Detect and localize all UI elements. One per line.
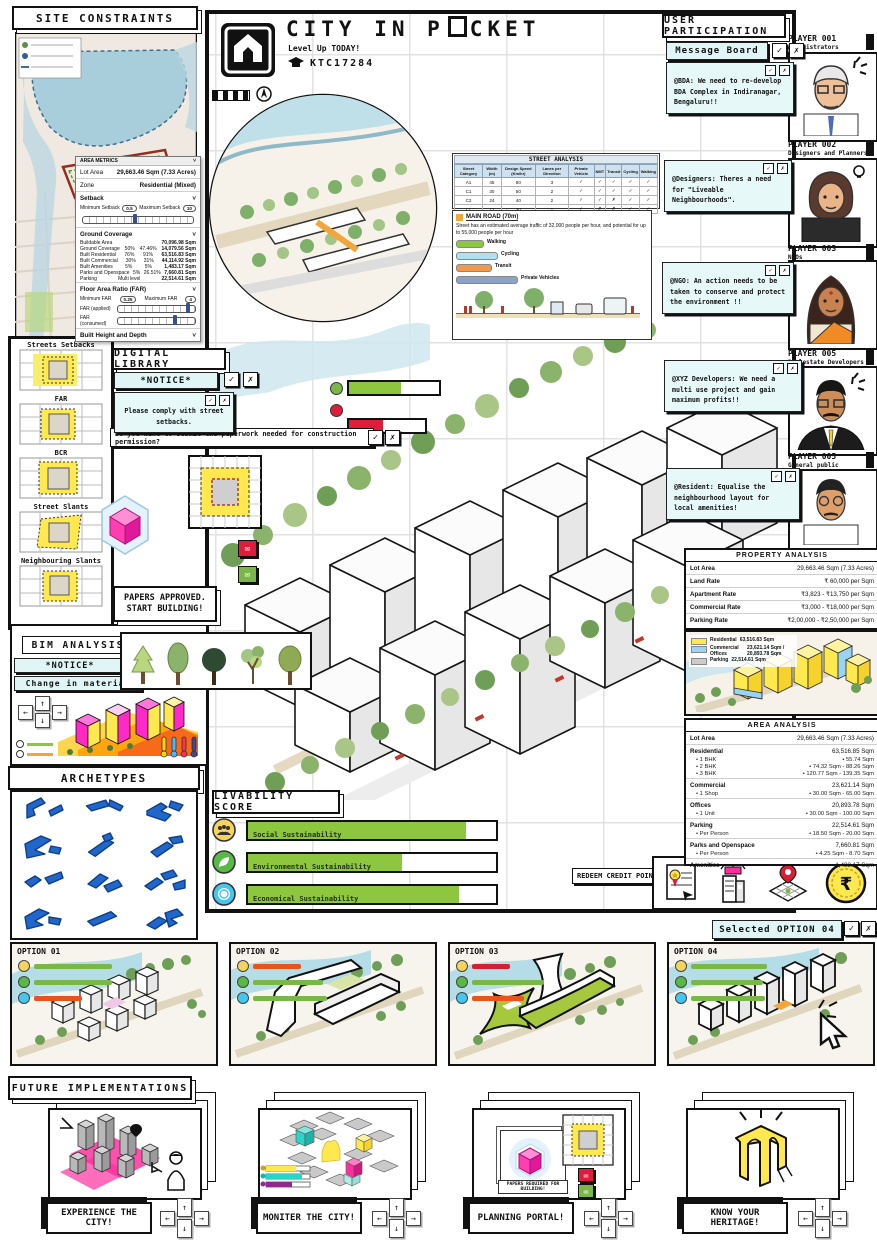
archetypes-grid bbox=[10, 790, 198, 940]
max-setback-value[interactable]: 10 bbox=[183, 205, 196, 212]
message-resident[interactable]: ✓✗ @Resident: Equalise the neighbourhood… bbox=[666, 468, 800, 520]
green-progress-dot bbox=[330, 382, 343, 395]
approve-checkbox[interactable]: ✓ bbox=[765, 65, 776, 76]
message-board-reject-checkbox[interactable]: ✗ bbox=[789, 43, 804, 58]
arrow-left-key[interactable]: ← bbox=[160, 1211, 175, 1226]
arrow-up-key[interactable]: ↑ bbox=[815, 1198, 830, 1217]
far-applied-label: FAR (applied) bbox=[80, 306, 114, 312]
player-002-avatar[interactable] bbox=[788, 158, 877, 248]
economy-score-icon bbox=[456, 992, 468, 1004]
north-arrow-icon bbox=[256, 86, 272, 102]
option-02-card[interactable]: OPTION 02 bbox=[229, 942, 437, 1066]
planning-portal-card[interactable]: ✉ ✉ PAPERS REQUIRED FOR BUILDING! bbox=[472, 1108, 626, 1200]
legend-private-vehicles: Private Vehicles bbox=[456, 275, 648, 284]
arrow-left-key[interactable]: ← bbox=[372, 1211, 387, 1226]
arrow-down-key[interactable]: ↓ bbox=[389, 1219, 404, 1238]
archetype-tile[interactable] bbox=[21, 795, 65, 825]
message-text: @Resident: Equalise the neighbourhood la… bbox=[674, 483, 769, 512]
player-002-label: PLAYER 002Designers and Planners bbox=[788, 140, 874, 158]
site-constraints-title: SITE CONSTRAINTS bbox=[36, 12, 174, 25]
option-01-card[interactable]: OPTION 01 bbox=[10, 942, 218, 1066]
arrow-right-key[interactable]: → bbox=[832, 1211, 847, 1226]
environment-score-icon bbox=[675, 976, 687, 988]
portal-approve-envelope[interactable]: ✉ bbox=[578, 1184, 594, 1198]
livability-label: Social Sustainability bbox=[248, 831, 342, 839]
property-analysis-panel: PROPERTY ANALYSIS Lot Area29,663.46 Sqm … bbox=[684, 548, 877, 630]
tree-option-conifer[interactable] bbox=[130, 644, 156, 686]
monitor-city-card[interactable] bbox=[258, 1108, 412, 1200]
heritage-card[interactable] bbox=[686, 1108, 840, 1200]
title-pre: CITY IN P bbox=[286, 17, 445, 41]
legend-walking: Walking bbox=[456, 239, 648, 248]
caption-text: EXPERIENCE THE CITY! bbox=[48, 1208, 150, 1228]
page-title: CITY IN PCKET bbox=[286, 16, 540, 41]
arrow-up-key[interactable]: ↑ bbox=[601, 1198, 616, 1217]
setbacks-notice-message[interactable]: ✓✗ Please comply with street setbacks. bbox=[114, 392, 234, 433]
archetype-tile[interactable] bbox=[82, 868, 126, 898]
archetypes-title: ARCHETYPES bbox=[61, 772, 147, 785]
archetype-tile[interactable] bbox=[143, 795, 187, 825]
notice-label: *NOTICE* bbox=[140, 376, 191, 386]
monitor-bars bbox=[261, 1166, 311, 1188]
monitor-city-render bbox=[260, 1110, 406, 1194]
person-figure bbox=[168, 1152, 184, 1190]
message-ngo[interactable]: ✓✗ @NGO: An action needs to be taken to … bbox=[662, 262, 794, 314]
metric-row: Lot Area29,663.46 Sqm (7.33 Acres) bbox=[76, 166, 200, 178]
message-text: @XYZ Developers: We need a multi use pro… bbox=[672, 375, 775, 404]
approve-checkbox[interactable]: ✓ bbox=[773, 363, 784, 374]
user-participation-title: USER PARTICIPATION bbox=[664, 15, 784, 37]
lightbulb-icon bbox=[854, 166, 864, 177]
frame-stub bbox=[866, 349, 874, 365]
arrow-up-key[interactable]: ↑ bbox=[177, 1198, 192, 1217]
green-progress-bar bbox=[347, 380, 441, 396]
reject-checkbox[interactable]: ✗ bbox=[785, 471, 796, 482]
graduation-cap-icon bbox=[288, 57, 304, 69]
masterplan-zoom-circle bbox=[207, 92, 439, 324]
option-04-card[interactable]: OPTION 04 bbox=[667, 942, 875, 1066]
far-consumed-label: FAR (consumed) bbox=[80, 315, 114, 327]
collapse-caret[interactable]: ˅ bbox=[193, 158, 196, 164]
caption-text: KNOW YOUR HERITAGE! bbox=[684, 1208, 786, 1228]
arrow-right-key[interactable]: → bbox=[406, 1211, 421, 1226]
archetype-tile[interactable] bbox=[143, 832, 187, 862]
neighbouring-slants-diagram bbox=[19, 565, 103, 607]
archetype-tile[interactable] bbox=[143, 905, 187, 935]
papers-required-note: PAPERS REQUIRED FOR BUILDING! bbox=[498, 1180, 568, 1194]
question-yes-checkbox[interactable]: ✓ bbox=[368, 430, 383, 445]
economy-score-icon bbox=[237, 992, 249, 1004]
area-metrics-title: AREA METRICS bbox=[80, 158, 118, 164]
score-bar bbox=[34, 996, 82, 1001]
environment-score-icon bbox=[456, 976, 468, 988]
area-metrics-panel: AREA METRICS ˅ Lot Area29,663.46 Sqm (7.… bbox=[75, 156, 201, 342]
notice-reject-checkbox[interactable]: ✗ bbox=[243, 372, 258, 387]
heritage-dpad[interactable]: ← ↑↓ → bbox=[798, 1198, 847, 1238]
social-icon bbox=[212, 818, 236, 842]
legend-cycling: Cycling bbox=[456, 251, 648, 260]
street-section-drawing bbox=[456, 286, 640, 320]
arrow-down-key[interactable]: ↓ bbox=[177, 1219, 192, 1238]
tree-option-oval[interactable] bbox=[167, 642, 189, 686]
sidebar-item-street-slants[interactable]: Street Slants bbox=[11, 503, 111, 511]
tree-option-olive[interactable] bbox=[278, 644, 302, 686]
svg-text:₹: ₹ bbox=[840, 874, 853, 895]
sidebar-item-streets-setbacks[interactable]: Streets Setbacks bbox=[11, 341, 111, 349]
heritage-monument-render bbox=[688, 1110, 834, 1194]
question-no-checkbox[interactable]: ✗ bbox=[385, 430, 400, 445]
portal-plan-icon bbox=[562, 1114, 614, 1166]
archetype-tile[interactable] bbox=[143, 868, 187, 898]
social-score-icon bbox=[18, 960, 30, 972]
sidebar-item-far[interactable]: FAR bbox=[11, 395, 111, 403]
arrow-right-key[interactable]: → bbox=[194, 1211, 209, 1226]
message-text: @Designers: Theres a need for "Liveable … bbox=[672, 175, 771, 204]
experience-city-caption[interactable]: EXPERIENCE THE CITY! bbox=[46, 1202, 152, 1234]
arrow-down-key[interactable]: ↓ bbox=[815, 1219, 830, 1238]
option-03-card[interactable]: OPTION 03 bbox=[448, 942, 656, 1066]
papers-approved-text: PAPERS APPROVED. START BUILDING! bbox=[115, 593, 215, 615]
sidebar-item-bcr[interactable]: BCR bbox=[11, 449, 111, 457]
bim-notice-label: *NOTICE* bbox=[46, 661, 95, 671]
area-analysis-panel: AREA ANALYSIS Lot Area29,663.46 Sqm (7.3… bbox=[684, 718, 877, 866]
score-bar bbox=[691, 964, 767, 969]
social-score-icon bbox=[456, 960, 468, 972]
notice-approve-checkbox[interactable]: ✓ bbox=[224, 372, 239, 387]
digital-library-header: DIGITAL LIBRARY bbox=[112, 348, 226, 370]
message-board-bar[interactable]: Message Board bbox=[666, 42, 768, 60]
reject-envelope-button[interactable]: ✉ bbox=[238, 540, 257, 557]
approve-envelope-button[interactable]: ✉ bbox=[238, 566, 257, 583]
player-003-avatar[interactable] bbox=[788, 260, 877, 350]
score-bar bbox=[253, 996, 327, 1001]
page-subtitle: Level Up TODAY! bbox=[288, 44, 360, 53]
street-section-desc: Street has an estimated average traffic … bbox=[456, 223, 648, 236]
frame-stub bbox=[866, 140, 874, 156]
heritage-caption[interactable]: KNOW YOUR HERITAGE! bbox=[682, 1202, 788, 1234]
message-developers[interactable]: ✓✗ @XYZ Developers: We need a multi use … bbox=[664, 360, 802, 412]
far-applied-slider[interactable] bbox=[117, 305, 196, 313]
app-logo bbox=[220, 22, 276, 78]
social-score-icon bbox=[675, 960, 687, 972]
setback-plan-icon[interactable] bbox=[188, 455, 262, 529]
score-bar bbox=[34, 964, 112, 969]
message-text: @BDA: We need to re-develop BDA Complex … bbox=[674, 77, 781, 106]
archetype-tile[interactable] bbox=[21, 832, 65, 862]
monitor-city-caption[interactable]: MONITER THE CITY! bbox=[256, 1202, 362, 1234]
monitor-dpad[interactable]: ← ↑↓ → bbox=[372, 1198, 421, 1238]
player-005-avatar[interactable] bbox=[788, 469, 877, 551]
message-board-label: Message Board bbox=[675, 46, 758, 56]
message-text: Please comply with street setbacks. bbox=[124, 407, 223, 426]
environment-score-icon bbox=[237, 976, 249, 988]
archetype-tile[interactable] bbox=[21, 868, 65, 898]
arrow-left-key[interactable]: ← bbox=[18, 705, 33, 720]
selected-option-bar: Selected OPTION 04 bbox=[712, 920, 842, 939]
approve-checkbox[interactable]: ✓ bbox=[765, 265, 776, 276]
setback-slider[interactable] bbox=[82, 216, 194, 224]
player-001-avatar[interactable] bbox=[788, 52, 877, 142]
reject-checkbox[interactable]: ✗ bbox=[787, 363, 798, 374]
bim-arrow-pad[interactable]: ← ↑ ↓ → bbox=[18, 696, 67, 728]
street-section-title: MAIN ROAD (70m) bbox=[466, 214, 518, 221]
experience-city-card[interactable] bbox=[48, 1108, 202, 1200]
livability-label: Economical Sustainability bbox=[248, 895, 358, 903]
approve-checkbox[interactable]: ✓ bbox=[763, 163, 774, 174]
title-post: CKET bbox=[470, 17, 541, 41]
area-analysis-title: AREA ANALYSIS bbox=[686, 720, 877, 732]
caption-text: MONITER THE CITY! bbox=[263, 1213, 355, 1223]
experience-dpad[interactable]: ← ↑↓ → bbox=[160, 1198, 209, 1238]
arrow-right-key[interactable]: → bbox=[52, 705, 67, 720]
selected-option-reject[interactable]: ✗ bbox=[861, 921, 876, 936]
property-analysis-title: PROPERTY ANALYSIS bbox=[686, 550, 877, 562]
economy-score-icon bbox=[675, 992, 687, 1004]
option-label: OPTION 01 bbox=[17, 947, 60, 956]
arrow-left-key[interactable]: ← bbox=[798, 1211, 813, 1226]
bim-notice-bar: *NOTICE* bbox=[14, 658, 126, 673]
site-constraints-header: SITE CONSTRAINTS bbox=[12, 6, 198, 30]
experience-city-render bbox=[50, 1110, 196, 1194]
message-text: @NGO: An action needs to be taken to con… bbox=[670, 277, 785, 306]
archetype-tile[interactable] bbox=[82, 795, 126, 825]
poster-canvas: CITY IN PCKET Level Up TODAY! KTC17284 bbox=[0, 0, 877, 1240]
score-bar bbox=[34, 980, 112, 985]
papers-approved-box: PAPERS APPROVED. START BUILDING! bbox=[113, 586, 217, 622]
reject-checkbox[interactable]: ✗ bbox=[777, 163, 788, 174]
bim-legend-dots bbox=[16, 740, 53, 758]
future-title: FUTURE IMPLEMENTATIONS bbox=[12, 1083, 188, 1094]
option-label: OPTION 04 bbox=[674, 947, 717, 956]
planning-dpad[interactable]: ← ↑↓ → bbox=[584, 1198, 633, 1238]
tree-option-branchy[interactable] bbox=[239, 644, 267, 686]
street-analysis-panel: STREET ANALYSIS Street CategoryWidth (m)… bbox=[452, 153, 660, 209]
scale-bar-icon bbox=[212, 90, 250, 101]
planning-portal-caption[interactable]: PLANNING PORTAL! bbox=[468, 1202, 574, 1234]
max-far-value[interactable]: 4 bbox=[185, 296, 196, 303]
livability-row-social: Social Sustainability bbox=[212, 818, 498, 842]
approve-checkbox[interactable]: ✓ bbox=[205, 395, 216, 406]
arrow-right-key[interactable]: → bbox=[618, 1211, 633, 1226]
score-bar bbox=[253, 964, 301, 969]
score-bar bbox=[691, 980, 763, 985]
livability-row-economy: Economical Sustainability bbox=[212, 882, 498, 906]
min-setback-label: Minimum Setback bbox=[80, 205, 120, 212]
min-far-label: Minimum FAR bbox=[80, 296, 111, 303]
min-setback-value[interactable]: 0.5 bbox=[122, 205, 136, 212]
arrow-down-key[interactable]: ↓ bbox=[35, 713, 50, 728]
reject-checkbox[interactable]: ✗ bbox=[779, 65, 790, 76]
sidebar-item-neighbouring-slants[interactable]: Neighbouring Slants bbox=[11, 557, 111, 565]
social-score-icon bbox=[237, 960, 249, 972]
score-bar bbox=[472, 980, 544, 985]
livability-header: LIVABILITY SCORE bbox=[212, 790, 340, 814]
option-label: OPTION 03 bbox=[455, 947, 498, 956]
street-section-panel: MAIN ROAD (70m) Street has an estimated … bbox=[452, 210, 652, 340]
min-far-value[interactable]: 0.25 bbox=[120, 296, 137, 303]
message-designers[interactable]: ✓✗ @Designers: Theres a need for "Liveab… bbox=[664, 160, 792, 212]
livability-title: LIVABILITY SCORE bbox=[214, 791, 338, 813]
livability-label: Environmental Sustainability bbox=[248, 863, 371, 871]
frame-stub bbox=[866, 34, 874, 50]
notice-bar: *NOTICE* bbox=[114, 372, 218, 389]
environment-icon bbox=[212, 850, 236, 874]
selected-option-approve[interactable]: ✓ bbox=[844, 921, 859, 936]
spark-icon bbox=[852, 373, 865, 390]
bim-analysis-header: BIM ANALYSIS bbox=[22, 636, 134, 654]
setbacks-diagram bbox=[19, 349, 103, 391]
score-bar bbox=[472, 996, 524, 1001]
street-analysis-title: STREET ANALYSIS bbox=[454, 155, 658, 164]
cursor-icon bbox=[819, 1000, 845, 1048]
reject-checkbox[interactable]: ✗ bbox=[779, 265, 790, 276]
economy-score-icon bbox=[18, 992, 30, 1004]
approve-checkbox[interactable]: ✓ bbox=[771, 471, 782, 482]
project-code: KTC17284 bbox=[310, 58, 374, 69]
digital-library-title: DIGITAL LIBRARY bbox=[114, 348, 224, 370]
message-bda[interactable]: ✓✗ @BDA: We need to re-develop BDA Compl… bbox=[666, 62, 794, 114]
bcr-diagram bbox=[19, 457, 103, 499]
max-far-label: Maximum FAR bbox=[145, 296, 178, 303]
tree-selection-strip bbox=[120, 632, 312, 690]
zoning-sidebar: Streets Setbacks FAR BCR Street Slants N… bbox=[8, 336, 114, 630]
property-axon-panel: Residential63,516.83 Sqm Commercial Offi… bbox=[684, 630, 877, 716]
max-setback-label: Maximum Setback bbox=[139, 205, 180, 212]
arrow-up-key[interactable]: ↑ bbox=[35, 696, 50, 711]
archetype-tile[interactable] bbox=[82, 905, 126, 935]
street-analysis-table: Street CategoryWidth (m) Design Speed (K… bbox=[454, 164, 658, 214]
street-slants-diagram bbox=[19, 511, 103, 553]
arrow-up-key[interactable]: ↑ bbox=[389, 1198, 404, 1217]
future-implementations-header: FUTURE IMPLEMENTATIONS bbox=[8, 1076, 192, 1100]
arrow-left-key[interactable]: ← bbox=[584, 1211, 599, 1226]
property-legend: Residential63,516.83 Sqm Commercial Offi… bbox=[689, 635, 797, 667]
archetypes-header: ARCHETYPES bbox=[8, 766, 200, 790]
user-participation-header: USER PARTICIPATION bbox=[662, 14, 786, 38]
warning-icon bbox=[456, 214, 463, 221]
player-005-label: PLAYER 005General public bbox=[788, 452, 874, 470]
portal-cube-icon bbox=[508, 1136, 552, 1182]
option-label: OPTION 02 bbox=[236, 947, 279, 956]
score-bar bbox=[253, 980, 323, 985]
score-bar bbox=[472, 964, 510, 969]
archetype-tile[interactable] bbox=[21, 905, 65, 935]
pocket-cube-icon[interactable] bbox=[100, 494, 150, 556]
livability-row-environment: Environmental Sustainability bbox=[212, 850, 498, 874]
red-progress-dot bbox=[330, 404, 343, 417]
frame-stub bbox=[866, 452, 874, 468]
tree-option-round-dark[interactable] bbox=[201, 646, 227, 686]
portal-reject-envelope[interactable]: ✉ bbox=[578, 1168, 594, 1182]
message-board-approve-checkbox[interactable]: ✓ bbox=[772, 43, 787, 58]
arrow-down-key[interactable]: ↓ bbox=[601, 1219, 616, 1238]
selected-option-label: Selected OPTION 04 bbox=[719, 925, 835, 935]
thermometer-icons bbox=[160, 736, 200, 758]
economy-icon bbox=[212, 882, 236, 906]
legend-transit: Transit bbox=[456, 263, 648, 272]
archetype-tile[interactable] bbox=[82, 832, 126, 862]
reject-checkbox[interactable]: ✗ bbox=[219, 395, 230, 406]
spark-icon bbox=[854, 57, 867, 74]
frame-stub bbox=[866, 244, 874, 260]
far-diagram bbox=[19, 403, 103, 445]
environment-score-icon bbox=[18, 976, 30, 988]
score-bar bbox=[691, 996, 765, 1001]
metric-row: ZoneResidential (Mixed) bbox=[76, 178, 200, 191]
bim-change-label: Change in material bbox=[26, 679, 131, 688]
bim-analysis-title: BIM ANALYSIS bbox=[32, 640, 125, 651]
player-003-label: PLAYER 003NGOs bbox=[788, 244, 874, 262]
far-consumed-slider[interactable] bbox=[117, 317, 196, 325]
caption-text: PLANNING PORTAL! bbox=[478, 1213, 565, 1223]
square-glyph bbox=[448, 16, 467, 37]
